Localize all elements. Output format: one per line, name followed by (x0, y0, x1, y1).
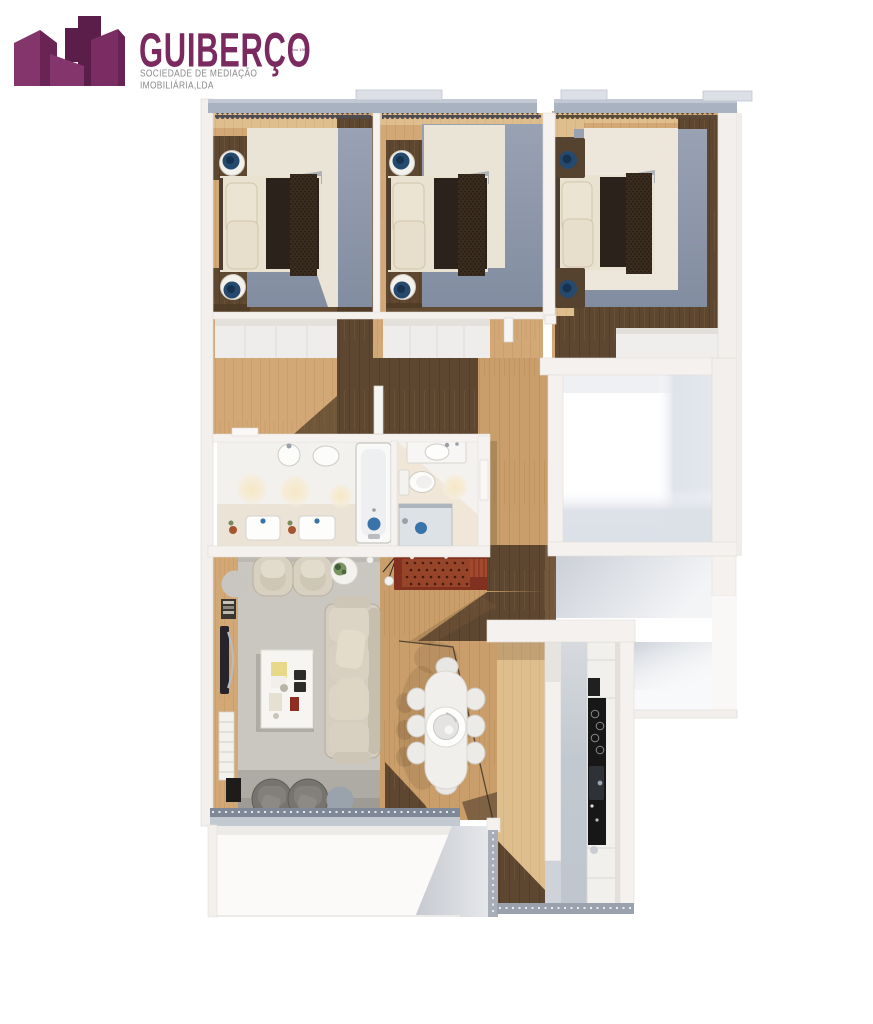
svg-text:SOCIEDADE DE MEDIAÇÃO: SOCIEDADE DE MEDIAÇÃO (140, 68, 257, 80)
svg-text:Ano 1995: Ano 1995 (291, 47, 309, 52)
svg-text:IMOBILIÁRIA,LDA: IMOBILIÁRIA,LDA (140, 80, 214, 92)
